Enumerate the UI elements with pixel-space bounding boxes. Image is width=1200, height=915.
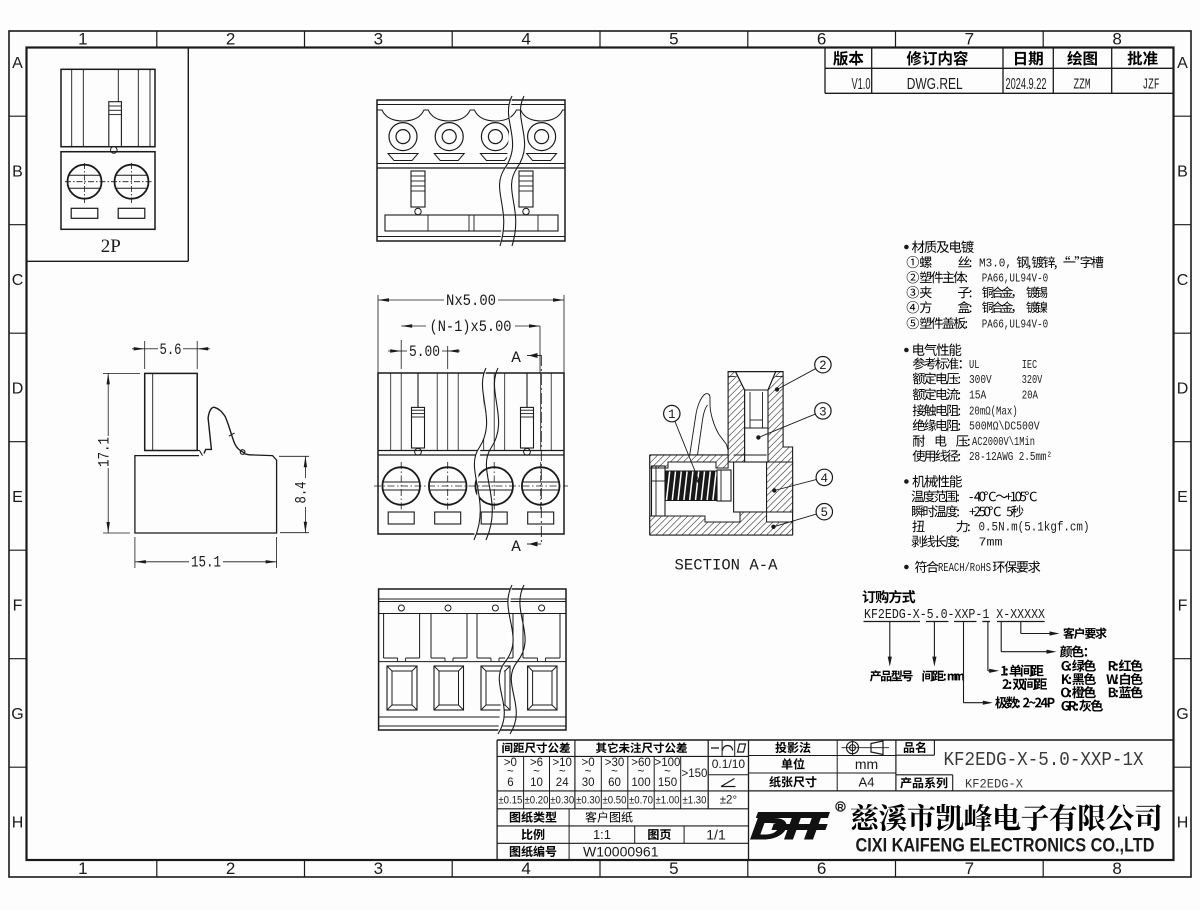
svg-text:D: D: [1177, 381, 1189, 398]
svg-text:2: 2: [226, 30, 235, 49]
svg-text:UL: UL: [969, 358, 980, 372]
svg-text:±0.70: ±0.70: [629, 795, 653, 807]
svg-text:1: 1: [78, 30, 87, 49]
svg-text:1/1: 1/1: [706, 827, 726, 843]
svg-text:F: F: [1178, 598, 1188, 615]
svg-text:C: C: [12, 272, 24, 289]
svg-text:±1.30: ±1.30: [683, 795, 707, 807]
svg-text:(N-1)x5.00: (N-1)x5.00: [430, 318, 512, 336]
svg-text:W10000961: W10000961: [583, 844, 659, 860]
svg-text:7: 7: [965, 859, 974, 878]
svg-text:R: R: [837, 802, 843, 812]
svg-text:H: H: [12, 815, 24, 832]
svg-text:±0.20: ±0.20: [525, 795, 549, 807]
svg-text:REACH/RoHS: REACH/RoHS: [938, 561, 991, 575]
svg-text:7: 7: [965, 30, 974, 49]
svg-text:8.4: 8.4: [293, 482, 311, 504]
svg-text:2024.9.22: 2024.9.22: [1006, 76, 1047, 93]
svg-text:G: G: [11, 706, 23, 723]
svg-text:15.1: 15.1: [191, 554, 221, 572]
svg-text:±0.50: ±0.50: [603, 795, 627, 807]
svg-text:G: G: [1176, 706, 1188, 723]
svg-text:ZZM: ZZM: [1074, 77, 1091, 94]
svg-text:5.6: 5.6: [160, 341, 182, 359]
svg-text:300V: 300V: [969, 373, 992, 387]
svg-text:PA66,UL94V-0: PA66,UL94V-0: [982, 272, 1048, 286]
svg-text:8: 8: [1112, 30, 1121, 49]
svg-text:±0.30: ±0.30: [576, 795, 600, 807]
svg-text:4: 4: [821, 472, 829, 486]
svg-text:B: B: [1177, 164, 1188, 181]
svg-text:20mΩ(Max): 20mΩ(Max): [969, 405, 1018, 419]
svg-text:±0.15: ±0.15: [498, 795, 522, 807]
svg-text:PA66,UL94V-0: PA66,UL94V-0: [982, 318, 1048, 332]
svg-text:100: 100: [631, 777, 650, 789]
svg-text:CIXI KAIFENG ELECTRONICS CO.,L: CIXI KAIFENG ELECTRONICS CO.,LTD: [856, 836, 1155, 857]
svg-text:mm: mm: [855, 756, 878, 772]
svg-text:320V: 320V: [1022, 373, 1043, 387]
svg-text:E: E: [12, 489, 23, 506]
svg-text:5: 5: [669, 859, 678, 878]
svg-text:A4: A4: [859, 775, 875, 790]
svg-text:D: D: [12, 381, 24, 398]
svg-text:6: 6: [817, 859, 826, 878]
svg-text:M3.0,: M3.0,: [979, 257, 1012, 271]
svg-text:>150: >150: [682, 768, 708, 780]
svg-text:5: 5: [669, 30, 678, 49]
svg-text:Nx5.00: Nx5.00: [446, 292, 496, 310]
svg-text:1: 1: [78, 859, 87, 878]
svg-text:V1.0: V1.0: [852, 76, 871, 93]
svg-text:A: A: [1177, 55, 1188, 72]
svg-text:C: C: [1177, 272, 1189, 289]
svg-text:3: 3: [374, 859, 383, 878]
svg-text:24: 24: [556, 777, 569, 789]
svg-text:KF2EDG-X-5.0-XXP-1X: KF2EDG-X-5.0-XXP-1X: [944, 749, 1145, 771]
svg-text:15A: 15A: [969, 389, 987, 403]
svg-text:±1.00: ±1.00: [656, 795, 680, 807]
svg-text:0.1/10: 0.1/10: [712, 757, 746, 771]
svg-text:KF2EDG-X-5.0-XXP-1 X-XXXXX: KF2EDG-X-5.0-XXP-1 X-XXXXX: [864, 608, 1045, 623]
svg-text:4: 4: [521, 859, 530, 878]
svg-text:A: A: [12, 55, 23, 72]
svg-text:E: E: [1177, 489, 1188, 506]
svg-text:AC2000V\1Min: AC2000V\1Min: [972, 435, 1035, 449]
svg-text:28-12AWG 2.5mm²: 28-12AWG 2.5mm²: [969, 450, 1052, 464]
svg-text:A: A: [511, 349, 521, 367]
svg-text:JZF: JZF: [1143, 77, 1160, 94]
svg-text:DWG.REL: DWG.REL: [907, 76, 963, 93]
svg-text:SECTION A-A: SECTION A-A: [675, 557, 779, 575]
svg-text:2: 2: [226, 859, 235, 878]
svg-text:500MΩ\DC500V: 500MΩ\DC500V: [969, 420, 1040, 434]
svg-text:5: 5: [821, 506, 829, 520]
svg-text:17.1: 17.1: [95, 437, 113, 467]
svg-text:±0.30: ±0.30: [550, 795, 574, 807]
svg-text:1: 1: [668, 408, 676, 422]
svg-text:IEC: IEC: [1022, 358, 1037, 372]
svg-text:5.00: 5.00: [409, 343, 440, 361]
svg-text:2: 2: [819, 359, 827, 373]
svg-text:10: 10: [530, 777, 543, 789]
svg-text:3: 3: [374, 30, 383, 49]
svg-text:4: 4: [521, 30, 530, 49]
svg-text:30: 30: [582, 777, 595, 789]
svg-text:8: 8: [1112, 859, 1121, 878]
svg-text:150: 150: [658, 777, 677, 789]
svg-text:3: 3: [819, 405, 827, 419]
svg-text:6: 6: [817, 30, 826, 49]
svg-text:0.5N.m(5.1kgf.cm): 0.5N.m(5.1kgf.cm): [979, 521, 1090, 535]
svg-text:6: 6: [507, 777, 513, 789]
svg-text:60: 60: [608, 777, 621, 789]
svg-text:2P: 2P: [101, 236, 121, 257]
svg-text:20A: 20A: [1022, 389, 1039, 403]
svg-text:A: A: [511, 538, 521, 556]
svg-text:B: B: [12, 164, 23, 181]
svg-text:±2°: ±2°: [720, 795, 737, 807]
svg-text:F: F: [13, 598, 23, 615]
svg-text:7mm: 7mm: [979, 536, 1003, 550]
svg-text:1:1: 1:1: [593, 827, 611, 842]
svg-text:KF2EDG-X: KF2EDG-X: [965, 777, 1023, 792]
svg-text:H: H: [1177, 815, 1189, 832]
